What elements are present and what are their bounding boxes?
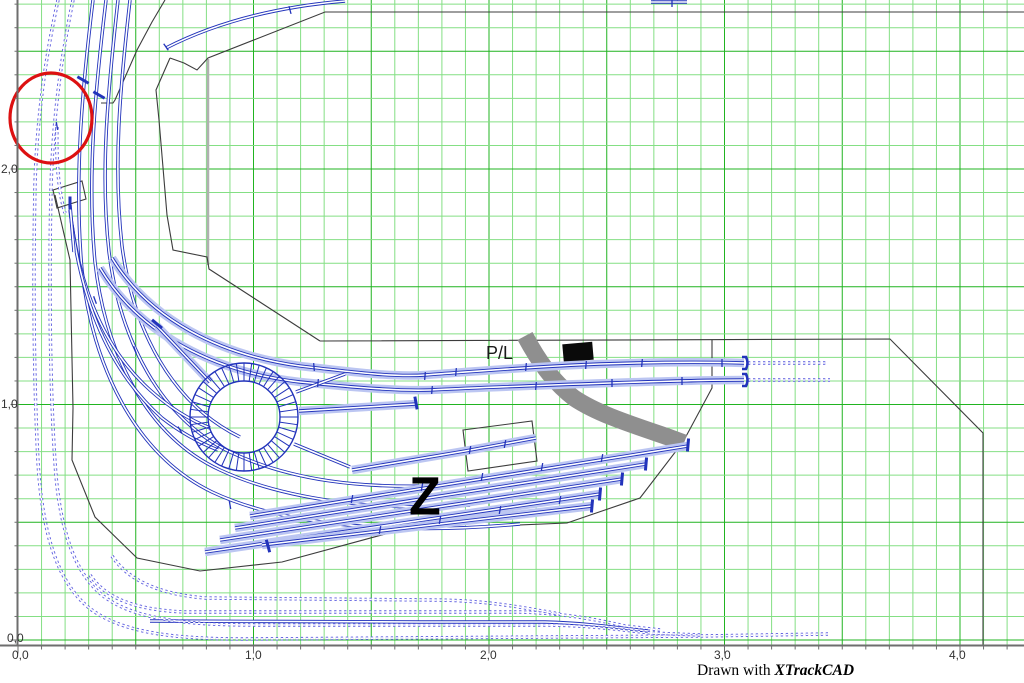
track-core [57,127,65,213]
track-endpoint-tick [432,386,433,394]
road-shape [525,336,684,443]
benchwork-outline [156,58,320,341]
turntable-spoke [254,452,259,469]
track-path[interactable] [112,556,560,614]
y-axis-label: 0,0 [7,632,24,644]
turntable-spoke [195,395,211,402]
turntable-spoke [277,432,293,439]
x-axis-label: 1,0 [245,649,262,661]
track-endpoint-tick [586,361,587,369]
turntable-spoke [280,409,298,412]
track-plan-drawing[interactable] [0,0,1024,683]
black-marker [562,342,593,363]
x-axis-label: 2,0 [480,649,497,661]
xtrackcad-plan-page: 0,01,02,03,04,02,01,00,0 P/L Z Drawn wit… [0,0,1024,683]
turntable-inner-ring [208,381,280,453]
y-axis-label: 1,0 [1,398,18,410]
turntable-spoke [222,450,229,466]
turntable-spoke [277,395,293,402]
track-endpoint-tick [642,359,643,367]
track-endpoint-tick [687,439,688,452]
label-platform: P/L [486,343,513,364]
track-core [294,444,350,467]
turntable-spoke [280,422,298,425]
track-core [92,0,470,507]
track-path[interactable] [57,127,65,213]
track-endpoint-tick [621,473,622,486]
caption-prefix: Drawn with [697,662,775,679]
track-endpoint-tick [318,379,319,387]
track-endpoint-tick [591,500,592,513]
y-axis-label: 2,0 [1,163,18,175]
benchwork-outline [170,12,1024,70]
track-endpoint-tick [456,368,457,376]
x-axis-label: 3,0 [714,649,731,661]
track-endpoint-tick [536,382,537,390]
track-path[interactable] [166,1,345,48]
track-endpoint-tick [526,363,527,371]
caption-brand: XTrackCAD [775,662,855,679]
track-path[interactable] [92,0,470,507]
track-endpoint-tick [425,372,426,380]
track-core [112,556,560,614]
x-axis-label: 4,0 [949,649,966,661]
track-endpoint-tick [645,458,646,471]
x-axis-label: 0,0 [12,649,29,661]
track-core [166,1,345,48]
track-endpoint-tick [314,363,315,371]
track-endpoint-tick [599,488,600,501]
caption: Drawn with XTrackCAD [697,662,854,680]
label-z: Z [409,470,441,524]
track-endpoint-tick [94,296,97,304]
